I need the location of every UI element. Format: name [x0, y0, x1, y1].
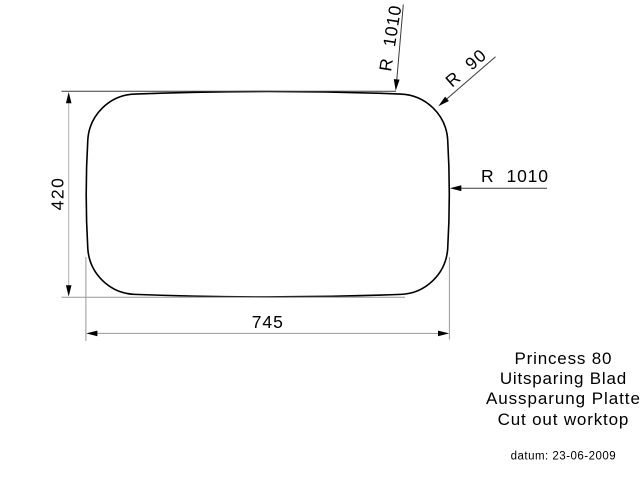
- svg-text:Princess 80: Princess 80: [514, 349, 612, 368]
- svg-text:745: 745: [252, 312, 284, 332]
- svg-text:R: R: [481, 166, 494, 186]
- svg-text:Cut out worktop: Cut out worktop: [498, 410, 630, 429]
- svg-text:Aussparung Platte: Aussparung Platte: [486, 389, 641, 408]
- svg-text:Uitsparing Blad: Uitsparing Blad: [500, 369, 627, 388]
- svg-text:1010: 1010: [507, 166, 549, 186]
- svg-text:420: 420: [47, 177, 67, 211]
- svg-text:datum: 23-06-2009: datum: 23-06-2009: [511, 451, 617, 463]
